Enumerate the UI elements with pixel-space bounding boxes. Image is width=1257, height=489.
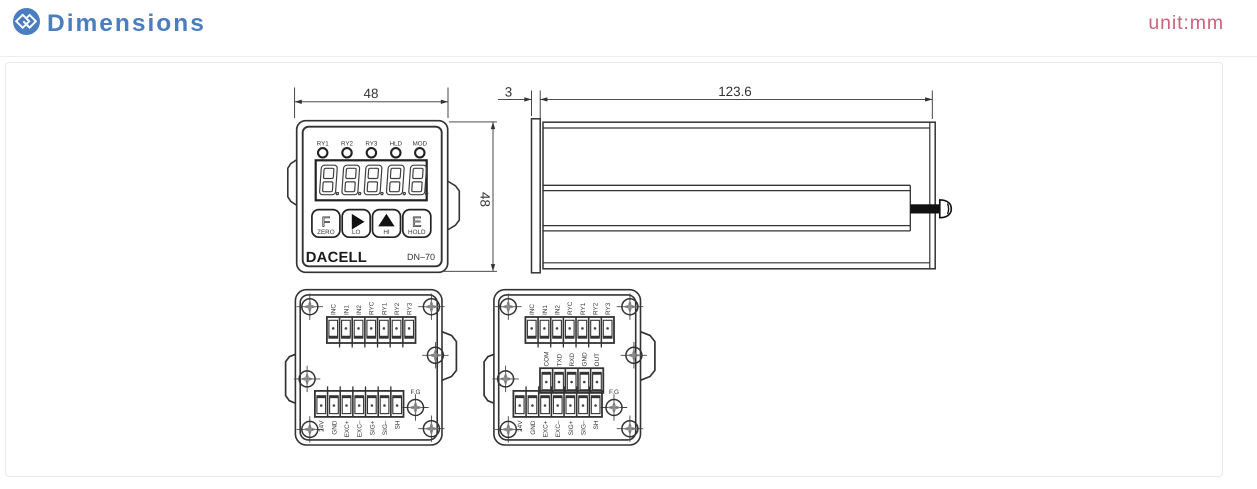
svg-text:SIG+: SIG+ <box>369 420 376 435</box>
svg-text:3: 3 <box>505 84 512 99</box>
svg-text:HOLD: HOLD <box>408 229 426 236</box>
svg-text:24V: 24V <box>319 420 326 432</box>
svg-text:F: F <box>322 214 331 230</box>
svg-text:EXC+: EXC+ <box>344 420 351 437</box>
svg-text:IN1: IN1 <box>343 305 350 315</box>
svg-text:DACELL: DACELL <box>306 250 367 266</box>
svg-text:DN–70: DN–70 <box>407 252 435 262</box>
svg-text:GND: GND <box>582 352 589 367</box>
svg-text:RXD: RXD <box>569 353 576 367</box>
svg-text:OUT: OUT <box>594 353 601 367</box>
svg-text:ZERO: ZERO <box>317 229 335 236</box>
svg-text:F.G: F.G <box>411 389 421 396</box>
svg-text:E: E <box>412 214 421 230</box>
svg-text:HI: HI <box>383 229 390 236</box>
svg-text:RY2: RY2 <box>394 302 401 315</box>
svg-text:INC: INC <box>331 304 338 315</box>
svg-text:48: 48 <box>478 192 493 207</box>
svg-text:LO: LO <box>352 229 361 236</box>
svg-text:RYC: RYC <box>369 301 376 315</box>
svg-text:SIG–: SIG– <box>382 420 389 435</box>
svg-text:IN2: IN2 <box>356 305 363 315</box>
svg-text:GND: GND <box>331 420 338 435</box>
svg-text:EXC–: EXC– <box>357 420 364 437</box>
svg-text:SH: SH <box>395 420 402 429</box>
svg-text:RY3: RY3 <box>407 302 414 315</box>
svg-text:RY1: RY1 <box>381 302 388 315</box>
svg-text:RY3: RY3 <box>365 140 377 147</box>
svg-text:TXD: TXD <box>556 353 563 366</box>
svg-text:48: 48 <box>364 86 379 101</box>
svg-text:RY1: RY1 <box>317 140 329 147</box>
svg-text:RY2: RY2 <box>341 140 353 147</box>
svg-text:123.6: 123.6 <box>718 84 752 99</box>
svg-text:HLD: HLD <box>390 140 403 147</box>
svg-text:MOD: MOD <box>413 140 428 147</box>
svg-text:COM: COM <box>544 352 551 367</box>
